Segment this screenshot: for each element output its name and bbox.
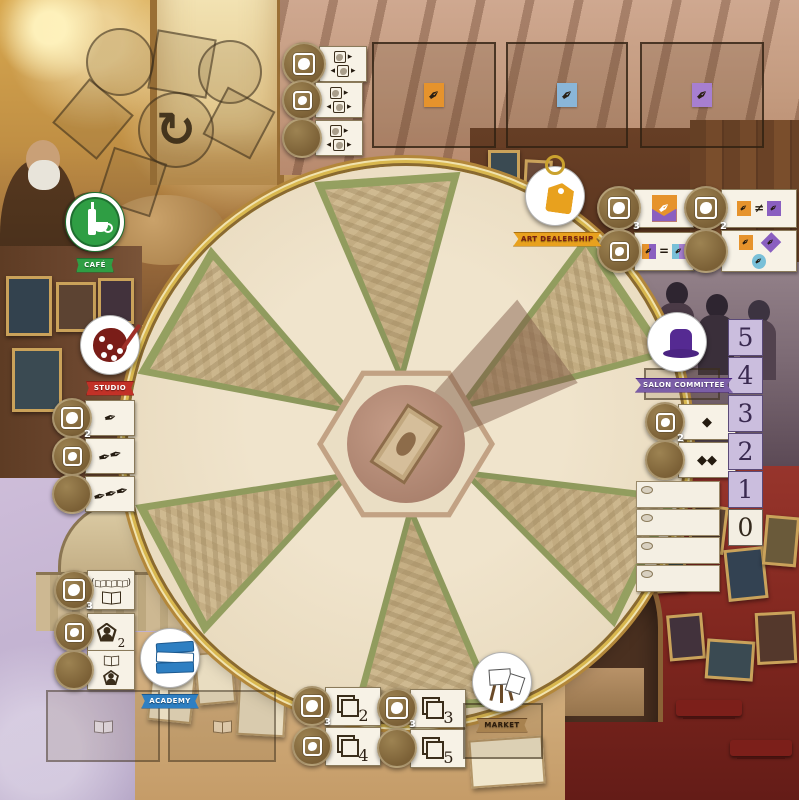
action-box[interactable]: ✒ ✒ ✒ bbox=[721, 230, 797, 272]
refresh-icon: ↻ bbox=[156, 106, 196, 154]
arrow-right-icon: ▸ bbox=[344, 89, 349, 98]
any-pen-icon: ✒ bbox=[652, 195, 677, 222]
market-action-left-2: 4 bbox=[292, 726, 381, 766]
cafe-patron-beard-art bbox=[28, 160, 60, 190]
commission-card-slot[interactable] bbox=[636, 565, 720, 592]
paren-close: ) bbox=[128, 578, 132, 588]
frame-count: 4 bbox=[358, 746, 368, 765]
arrow-right-icon: ▸ bbox=[347, 103, 352, 112]
action-box[interactable]: ▸ ◂▸ bbox=[319, 46, 367, 82]
dealership-action-right-2: ✒ ✒ ✒ bbox=[684, 229, 797, 273]
game-board: ↻ ✒ ✒ ✒ ▸ ◂▸ ▸ ◂▸ ▸ bbox=[0, 0, 799, 800]
dealership-action-right-1: 2 ✒ ≠ ✒ bbox=[684, 186, 797, 230]
painting-token-icon bbox=[63, 447, 82, 466]
gallery-bench-art bbox=[730, 740, 792, 756]
salon-action-row-2: ◆◆ bbox=[645, 440, 736, 480]
cafe-action-row-3: ▸ ◂▸ bbox=[282, 118, 363, 158]
arrow-right-icon: ▸ bbox=[348, 53, 353, 62]
badge-market: MARKET bbox=[460, 652, 544, 733]
action-box[interactable]: ▸ ◂▸ bbox=[315, 120, 363, 156]
salon-track-cell-1[interactable]: 1 bbox=[728, 471, 763, 508]
action-box[interactable]: 4 bbox=[325, 727, 381, 766]
card-slot-blue-pen[interactable]: ✒ bbox=[506, 42, 628, 148]
painting-icon bbox=[333, 101, 345, 113]
purple-pen-icon: ✒ bbox=[767, 201, 781, 216]
arrow-right-icon: ▸ bbox=[351, 67, 356, 76]
frame-stack-icon bbox=[337, 735, 359, 757]
action-box[interactable]: ▸ ◂▸ bbox=[315, 82, 363, 118]
worker-space-empty[interactable] bbox=[377, 728, 417, 768]
commission-card-slot[interactable] bbox=[636, 537, 720, 564]
books-icon bbox=[145, 633, 195, 683]
worker-space-empty[interactable] bbox=[52, 474, 92, 514]
salon-track-cell-0[interactable]: 0 bbox=[728, 509, 763, 546]
studio-action-row-3: ✒✒✒ bbox=[52, 474, 135, 514]
worker-space[interactable] bbox=[292, 726, 332, 766]
gallery-painting-art bbox=[705, 638, 756, 681]
badge-dealership: ART DEALERSHIP bbox=[513, 166, 597, 247]
action-box[interactable]: ✒✒ bbox=[85, 438, 135, 474]
worker-space[interactable]: 2 bbox=[645, 402, 685, 442]
medal-diamond-icon: ◆◆ bbox=[697, 453, 717, 468]
palette-icon bbox=[85, 320, 135, 370]
worker-space[interactable]: 3 bbox=[377, 688, 417, 728]
card-slot-purple-pen[interactable]: ✒ bbox=[640, 42, 764, 148]
badge-cafe: CAFÉ bbox=[53, 192, 137, 273]
badge-label: ACADEMY bbox=[141, 694, 198, 709]
frame-stack-icon bbox=[422, 697, 444, 719]
frame-stack-icon bbox=[422, 737, 444, 759]
studio-action-row-2: ✒✒ bbox=[52, 436, 135, 476]
action-box[interactable]: ✒ bbox=[85, 400, 135, 436]
arrow-left-icon: ◂ bbox=[326, 103, 331, 112]
gallery-painting-art bbox=[666, 613, 706, 662]
painting-token-icon bbox=[293, 91, 312, 110]
painting-icon bbox=[333, 139, 345, 151]
worker-space-empty[interactable] bbox=[645, 440, 685, 480]
worker-space[interactable] bbox=[282, 80, 322, 120]
canvas-dot-icon bbox=[641, 514, 653, 522]
book-icon bbox=[102, 591, 121, 604]
cafe-action-row-2: ▸ ◂▸ bbox=[282, 80, 363, 120]
painting-token-icon bbox=[63, 579, 85, 601]
orange-pen-icon: ✒ bbox=[737, 201, 751, 216]
worker-space-empty[interactable] bbox=[684, 229, 728, 273]
painting-icon bbox=[330, 87, 342, 99]
worker-space[interactable] bbox=[597, 229, 641, 273]
painting-token-icon bbox=[386, 697, 408, 719]
gallery-bench-art bbox=[676, 700, 742, 716]
frame-stack-icon bbox=[337, 695, 359, 717]
worker-space-empty[interactable] bbox=[282, 118, 322, 158]
action-box[interactable]: 3 bbox=[410, 689, 466, 728]
painting-token-icon bbox=[608, 197, 630, 219]
purple-pen-diamond-icon: ✒ bbox=[761, 232, 782, 253]
city-block bbox=[309, 167, 480, 391]
worker-space[interactable]: 3 bbox=[597, 186, 641, 230]
dealership-action-left-2: ✒ = ✒ bbox=[597, 229, 694, 273]
gallery-painting-art bbox=[762, 515, 799, 568]
action-box[interactable]: ✒✒✒ bbox=[85, 476, 135, 512]
salon-track-cell-2[interactable]: 2 bbox=[728, 433, 763, 470]
studio-action-row-1: 2 ✒ bbox=[52, 398, 135, 438]
painting-token-icon bbox=[656, 413, 675, 432]
gallery-painting-art bbox=[6, 276, 52, 336]
dealership-action-left-1: 3 ✒ bbox=[597, 186, 694, 230]
price-tag-icon bbox=[530, 171, 580, 221]
gallery-door-floor-art bbox=[560, 668, 644, 716]
equals-sign: = bbox=[659, 244, 669, 258]
worker-space[interactable]: 2 bbox=[52, 398, 92, 438]
badge-salon: SALON COMMITTEE bbox=[635, 312, 719, 393]
market-action-left-1: 3 2 bbox=[292, 686, 381, 726]
frame-count: 3 bbox=[443, 708, 453, 727]
market-action-right-2: 5 bbox=[377, 728, 466, 768]
painting-token-icon bbox=[301, 695, 323, 717]
painting-icon bbox=[330, 125, 342, 137]
worker-space[interactable] bbox=[54, 612, 94, 652]
brush-stroke-icon: ✒✒ bbox=[97, 444, 124, 467]
painting-token-icon bbox=[65, 623, 84, 642]
salon-track-cell-4[interactable]: 4 bbox=[728, 357, 763, 394]
student-pentagon-icon bbox=[97, 623, 117, 642]
purple-pen-icon: ✒ bbox=[692, 83, 712, 107]
badge-label: CAFÉ bbox=[76, 258, 114, 273]
salon-track-cell-3[interactable]: 3 bbox=[728, 395, 763, 432]
canvas-dot-icon bbox=[641, 570, 653, 578]
student-pentagon-icon bbox=[103, 669, 119, 684]
book-icon bbox=[103, 655, 118, 665]
gallery-painting-art bbox=[755, 611, 798, 665]
action-box[interactable]: 2 bbox=[325, 687, 381, 726]
painting-token-icon bbox=[695, 197, 717, 219]
worker-space-empty[interactable] bbox=[54, 650, 94, 690]
book-icon bbox=[95, 579, 105, 586]
arrow-left-icon: ◂ bbox=[330, 67, 335, 76]
brush-stroke-icon: ✒✒✒ bbox=[91, 481, 129, 507]
refresh-tile-slot[interactable]: ↻ bbox=[138, 92, 214, 168]
academy-action-row-2: 2 bbox=[54, 612, 135, 652]
split-pen-icon: ✒ bbox=[642, 244, 656, 259]
salon-action-row-1: 2 ◆ bbox=[645, 402, 736, 442]
orange-pen-icon: ✒ bbox=[739, 235, 753, 250]
badge-label: MARKET bbox=[476, 718, 527, 733]
academy-action-row-1: 3 ( ) bbox=[54, 570, 135, 610]
medal-diamond-icon: ◆ bbox=[702, 415, 712, 430]
cafe-icon bbox=[70, 197, 120, 247]
action-box[interactable]: ( ) bbox=[87, 570, 135, 610]
commission-card-slot[interactable] bbox=[636, 509, 720, 536]
frame-count: 2 bbox=[358, 706, 368, 725]
painting-token-icon bbox=[293, 53, 315, 75]
badge-studio: STUDIO bbox=[68, 315, 152, 396]
book-icon bbox=[94, 720, 113, 733]
badge-label: ART DEALERSHIP bbox=[513, 232, 602, 247]
market-action-right-1: 3 3 bbox=[377, 688, 466, 728]
painting-icon bbox=[337, 65, 349, 77]
painting-token-icon bbox=[303, 737, 322, 756]
orange-pen-icon: ✒ bbox=[424, 83, 444, 107]
arrow-right-icon: ▸ bbox=[344, 127, 349, 136]
blue-pen-circle-icon: ✒ bbox=[752, 254, 766, 269]
action-box[interactable]: ✒ ≠ ✒ bbox=[721, 189, 797, 228]
worker-space[interactable]: 3 bbox=[292, 686, 332, 726]
book-icon bbox=[117, 579, 127, 586]
book-icon bbox=[213, 720, 232, 733]
worker-space[interactable] bbox=[52, 436, 92, 476]
painting-token-icon bbox=[610, 242, 629, 261]
frame-count: 5 bbox=[443, 748, 453, 767]
card-slot-orange-pen[interactable]: ✒ bbox=[372, 42, 496, 148]
worker-space[interactable]: 3 bbox=[54, 570, 94, 610]
top-hat-icon bbox=[652, 317, 702, 367]
easel-icon bbox=[477, 657, 527, 707]
badge-label: STUDIO bbox=[86, 381, 134, 396]
student-count: 2 bbox=[118, 636, 126, 650]
arrow-right-icon: ▸ bbox=[347, 141, 352, 150]
badge-academy: ACADEMY bbox=[128, 628, 212, 709]
painting-token-icon bbox=[61, 407, 83, 429]
painting-icon bbox=[334, 51, 346, 63]
commission-card-slot[interactable] bbox=[636, 481, 720, 508]
worker-space[interactable]: 2 bbox=[684, 186, 728, 230]
action-box[interactable]: 5 bbox=[410, 729, 466, 768]
brush-stroke-icon: ✒ bbox=[102, 408, 118, 428]
token-count: 3 bbox=[86, 601, 93, 612]
canvas-dot-icon bbox=[641, 542, 653, 550]
book-icon bbox=[106, 579, 116, 586]
academy-action-row-3 bbox=[54, 650, 135, 690]
not-equal-sign: ≠ bbox=[754, 201, 764, 215]
salon-track-cell-5[interactable]: 5 bbox=[728, 319, 763, 356]
canvas-dot-icon bbox=[641, 486, 653, 494]
arrow-left-icon: ◂ bbox=[326, 141, 331, 150]
badge-label: SALON COMMITTEE bbox=[635, 378, 733, 393]
blue-pen-icon: ✒ bbox=[557, 83, 577, 107]
